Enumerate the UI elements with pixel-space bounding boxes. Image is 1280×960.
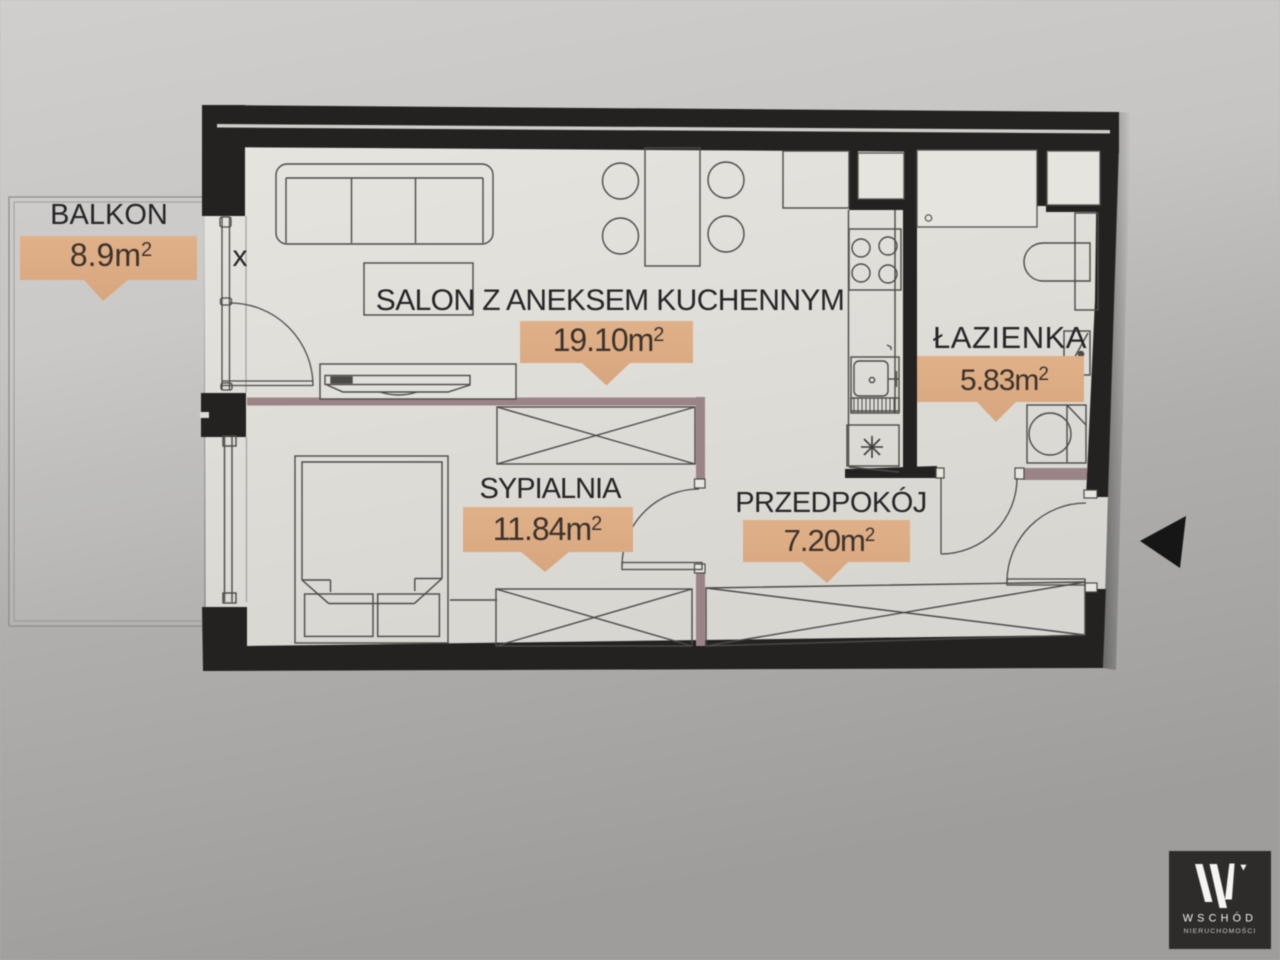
svg-text:5.83m2: 5.83m2 [960, 364, 1048, 397]
svg-text:x: x [233, 240, 248, 273]
svg-text:WSCHÓD: WSCHÓD [1183, 912, 1257, 925]
svg-text:11.84m2: 11.84m2 [493, 511, 602, 547]
svg-text:19.10m2: 19.10m2 [553, 322, 665, 358]
svg-text:NIERUCHOMOŚCI: NIERUCHOMOŚCI [1184, 926, 1257, 935]
svg-text:8.9m2: 8.9m2 [70, 237, 152, 273]
svg-text:SALON Z ANEKSEM KUCHENNYM: SALON Z ANEKSEM KUCHENNYM [376, 284, 844, 317]
svg-text:BALKON: BALKON [50, 199, 168, 231]
svg-text:7.20m2: 7.20m2 [784, 523, 875, 558]
svg-text:PRZEDPOKÓJ: PRZEDPOKÓJ [735, 486, 927, 519]
svg-text:ŁAZIENKA: ŁAZIENKA [933, 320, 1087, 355]
svg-text:SYPIALNIA: SYPIALNIA [480, 473, 623, 505]
